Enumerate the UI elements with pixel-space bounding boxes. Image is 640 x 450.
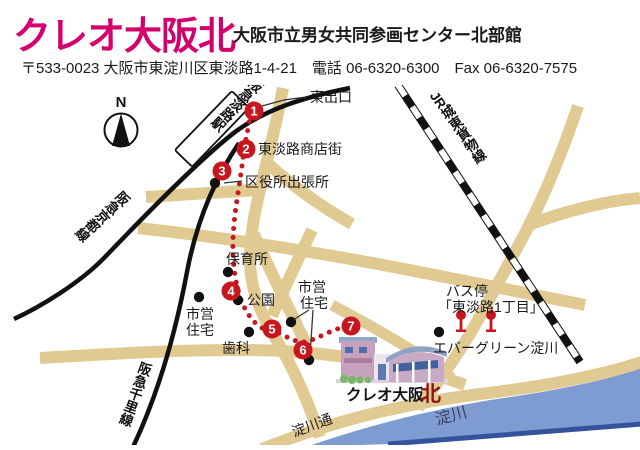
page-subtitle: 大阪市立男女共同参画センター北部館 <box>233 21 522 46</box>
housing-left-label-line2: 住宅 <box>186 322 214 338</box>
facility-dot-evergreen <box>434 327 444 337</box>
route-stop-1: 1 <box>245 102 264 121</box>
rail-label-text: 阪急千里線 <box>115 359 153 429</box>
access-map: 阪急京都線 阪急千里線 JR城東貨物線 阪急淡路駅 N <box>0 85 640 445</box>
route-stop-7: 7 <box>342 317 361 336</box>
compass-n-label: N <box>116 94 127 111</box>
jr-joto-line-label: JR城東貨物線 <box>427 88 489 168</box>
svg-text:4: 4 <box>227 284 235 299</box>
facility-dot-housing-mid-1 <box>286 317 296 327</box>
housing-mid-label-line2: 住宅 <box>300 295 328 311</box>
facility-dot-housing-left <box>194 292 204 302</box>
hankyu-senri-line-label: 阪急千里線 <box>115 359 153 429</box>
facility-dot-nursery <box>223 267 233 277</box>
dental-label: 歯科 <box>222 340 250 356</box>
facility-dot-dental <box>244 327 254 337</box>
svg-text:3: 3 <box>218 164 225 179</box>
route-stop-3: 3 <box>213 162 232 181</box>
svg-text:5: 5 <box>268 322 275 337</box>
bus-stop-label-line1: バス停 <box>446 283 488 299</box>
svg-text:7: 7 <box>347 319 354 334</box>
housing-mid-label-line1: 市営 <box>298 279 326 295</box>
page-title: クレオ大阪北 <box>13 5 235 60</box>
svg-text:1: 1 <box>250 104 257 119</box>
station-box: 阪急淡路駅 <box>175 85 269 167</box>
route-stop-4: 4 <box>222 282 241 301</box>
shopping-street-label: 東淡路商店街 <box>258 141 342 157</box>
svg-text:6: 6 <box>299 343 306 358</box>
rail-label-text: JR城東貨物線 <box>427 88 489 168</box>
bus-stop-label-line2: 「東淡路1丁目」 <box>438 299 544 315</box>
railway-jr-line <box>398 85 580 362</box>
svg-text:2: 2 <box>242 142 249 157</box>
building-kita-label: 北 <box>420 383 441 406</box>
road <box>264 160 352 224</box>
east-exit-label: 東出口 <box>310 89 352 105</box>
route-stop-5: 5 <box>263 320 282 339</box>
park-label: 公園 <box>247 292 275 308</box>
compass-icon: N <box>105 94 138 147</box>
address-line: 〒533-0023 大阪市東淀川区東淡路1-4-21 電話 06-6320-63… <box>21 57 577 78</box>
route-stop-6: 6 <box>294 341 313 360</box>
building-name-label: クレオ大阪 <box>346 385 424 404</box>
route-stop-2: 2 <box>237 140 256 159</box>
nursery-label: 保育所 <box>226 251 268 267</box>
evergreen-label: エバーグリーン淀川 <box>433 340 558 356</box>
ward-office-label: 区役所出張所 <box>245 174 329 190</box>
housing-left-label-line1: 市営 <box>186 306 214 322</box>
